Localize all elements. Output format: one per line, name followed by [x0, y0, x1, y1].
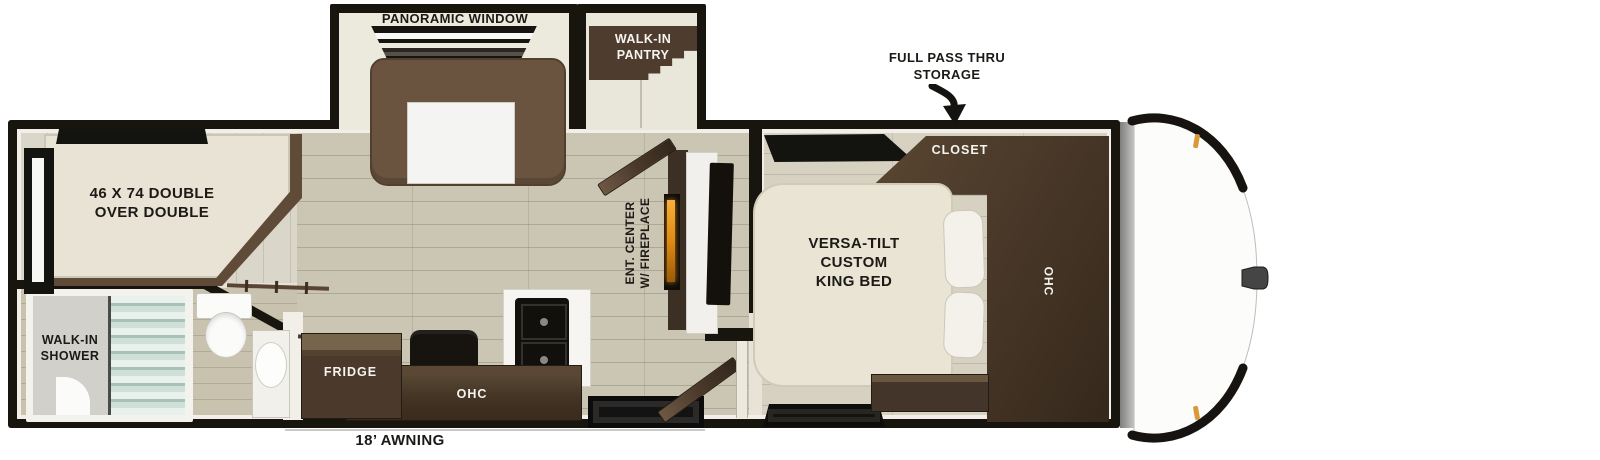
bed-foot-bench	[871, 374, 989, 412]
ladder-rung	[275, 281, 278, 293]
shower-glass-door	[110, 296, 185, 415]
pantry-floor-seam	[640, 80, 642, 128]
floorplan-canvas: PANORAMIC WINDOW WALK-IN PANTRY WALK-IN …	[0, 0, 1600, 460]
ladder-rung	[305, 282, 308, 294]
vanity-sink	[255, 342, 287, 388]
fireplace-flame	[667, 200, 675, 282]
pantry-label: WALK-IN PANTRY	[589, 31, 697, 63]
sink-drain	[540, 356, 548, 364]
shower-label: WALK-IN SHOWER	[30, 332, 110, 364]
fridge-label: FRIDGE	[301, 364, 400, 380]
bedroom-window-bottom	[763, 404, 885, 427]
front-cap-body	[1134, 117, 1257, 438]
bunk-bed-label: 46 X 74 DOUBLE OVER DOUBLE	[62, 184, 242, 222]
pillow	[943, 209, 986, 288]
hitch-coupler	[1242, 267, 1268, 289]
pillow	[943, 291, 985, 358]
bunk-window-left-glass	[32, 158, 44, 282]
entry-wall-stub-white	[736, 341, 748, 418]
pass-thru-storage-label: FULL PASS THRU STORAGE	[867, 50, 1027, 83]
front-cap	[1114, 102, 1274, 450]
ent-center-label: ENT. CENTER W/ FIREPLACE	[623, 168, 659, 318]
storage-arrow-icon	[926, 84, 970, 126]
sink-drain	[540, 318, 548, 326]
kitchen-ohc-label: OHC	[410, 386, 534, 402]
bunk-window-top	[56, 129, 208, 144]
ladder-rung	[245, 280, 248, 292]
panoramic-window-label: PANORAMIC WINDOW	[350, 11, 560, 28]
panoramic-window-glass	[364, 26, 544, 60]
sink-bowl	[521, 304, 567, 340]
tv	[706, 163, 734, 306]
awning-label: 18’ AWNING	[330, 431, 470, 450]
toilet-bowl	[205, 312, 247, 358]
closet-label: CLOSET	[905, 142, 1015, 158]
bedroom-ohc-label: OHC	[1041, 250, 1056, 314]
king-bed-label: VERSA-TILT CUSTOM KING BED	[768, 234, 940, 292]
dinette-table	[407, 102, 515, 184]
